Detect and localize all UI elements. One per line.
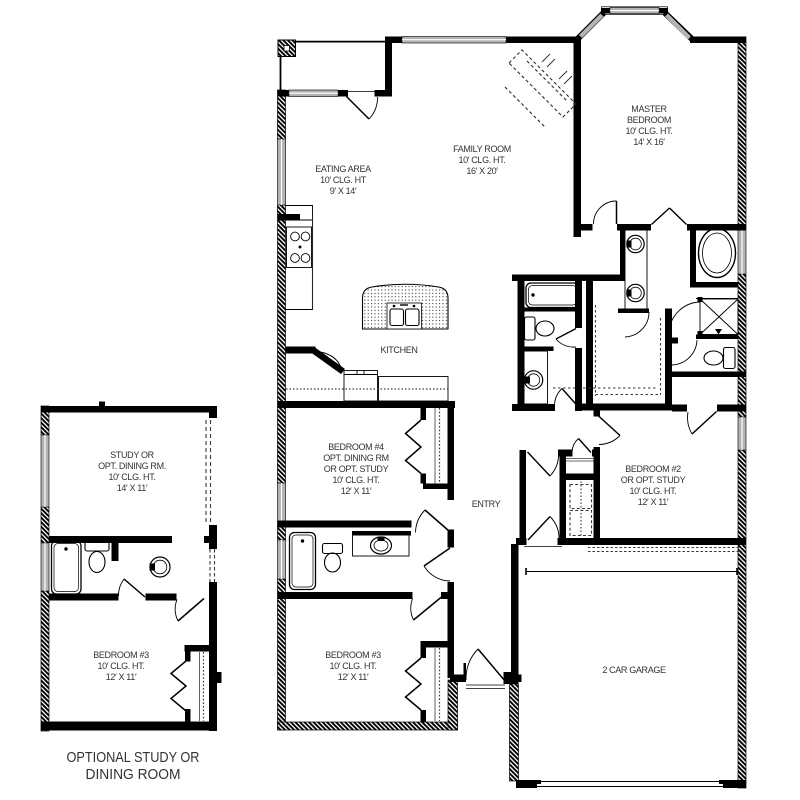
svg-text:DINING ROOM: DINING ROOM xyxy=(86,767,181,783)
svg-text:12′ X 11′: 12′ X 11′ xyxy=(341,486,372,496)
svg-text:10′ CLG. HT.: 10′ CLG. HT. xyxy=(108,472,155,482)
svg-text:OPT. DINING RM: OPT. DINING RM xyxy=(323,453,389,463)
svg-text:10′ CLG. HT.: 10′ CLG. HT. xyxy=(97,661,144,671)
svg-text:BEDROOM: BEDROOM xyxy=(627,115,671,125)
svg-text:BEDROOM #3: BEDROOM #3 xyxy=(325,650,381,660)
svg-text:OR OPT. STUDY: OR OPT. STUDY xyxy=(324,464,389,474)
svg-text:10′ CLG. HT: 10′ CLG. HT xyxy=(320,175,367,185)
svg-text:BEDROOM #4: BEDROOM #4 xyxy=(328,442,384,452)
svg-text:BEDROOM #2: BEDROOM #2 xyxy=(625,464,681,474)
svg-text:2 CAR GARAGE: 2 CAR GARAGE xyxy=(602,665,666,675)
svg-text:KITCHEN: KITCHEN xyxy=(380,345,417,355)
svg-text:OPT. DINING RM.: OPT. DINING RM. xyxy=(98,461,166,471)
svg-text:BEDROOM #3: BEDROOM #3 xyxy=(93,650,149,660)
svg-text:10′ CLG. HT.: 10′ CLG. HT. xyxy=(625,126,672,136)
svg-text:14′ X 16′: 14′ X 16′ xyxy=(633,137,665,147)
svg-text:EATING AREA: EATING AREA xyxy=(315,164,371,174)
svg-text:12′ X 11′: 12′ X 11′ xyxy=(338,672,369,682)
svg-text:OR OPT. STUDY: OR OPT. STUDY xyxy=(621,475,686,485)
svg-text:12′ X 11′: 12′ X 11′ xyxy=(638,497,669,507)
svg-text:FAMILY ROOM: FAMILY ROOM xyxy=(453,144,511,154)
svg-text:12′ X 11′: 12′ X 11′ xyxy=(106,672,137,682)
svg-text:10′ CLG. HT.: 10′ CLG. HT. xyxy=(332,475,379,485)
svg-text:ENTRY: ENTRY xyxy=(472,499,501,509)
svg-text:14′ X 11′: 14′ X 11′ xyxy=(117,483,148,493)
svg-text:10′ CLG. HT.: 10′ CLG. HT. xyxy=(329,661,376,671)
svg-text:9′ X 14′: 9′ X 14′ xyxy=(330,186,357,196)
svg-text:10′ CLG. HT.: 10′ CLG. HT. xyxy=(629,486,676,496)
svg-text:MASTER: MASTER xyxy=(631,104,667,114)
svg-text:OPTIONAL STUDY OR: OPTIONAL STUDY OR xyxy=(67,750,200,766)
svg-text:STUDY OR: STUDY OR xyxy=(110,450,154,460)
svg-text:10′ CLG. HT.: 10′ CLG. HT. xyxy=(458,155,505,165)
svg-text:16′ X 20′: 16′ X 20′ xyxy=(466,166,498,176)
